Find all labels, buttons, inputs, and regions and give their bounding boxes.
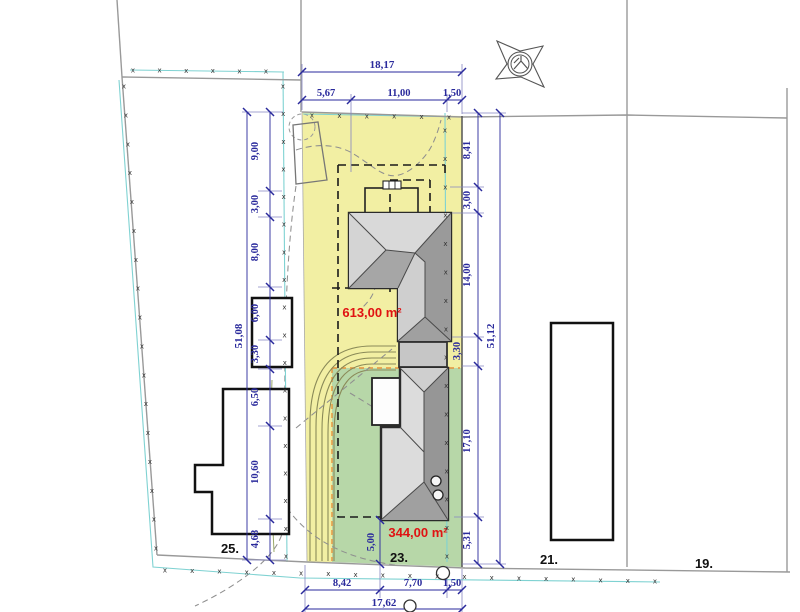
survey-point-circle-2 (404, 600, 416, 612)
fence-x-mark: x (282, 193, 286, 201)
fence-x-mark: x (653, 578, 657, 586)
existing-building-plot21 (551, 323, 613, 540)
fence-x-mark: x (445, 524, 449, 532)
dim-right-3: 14,00 (462, 263, 473, 287)
fence-x-mark: x (443, 183, 447, 191)
dim-bottom-1: 8,42 (333, 578, 351, 589)
fence-x-mark: x (140, 342, 144, 350)
fence-x-mark: x (190, 567, 194, 575)
fence-x-mark: x (148, 458, 152, 466)
fence-x-mark: x (444, 382, 448, 390)
fence-x-mark: x (544, 575, 548, 583)
fence-x-mark: x (443, 127, 447, 135)
fence-x-mark: x (283, 331, 287, 339)
fence-x-mark: x (284, 497, 288, 505)
dim-bottom-2: 7,70 (404, 578, 422, 589)
dim-top-1: 5,67 (317, 88, 335, 99)
dim-left-8: 4,68 (250, 530, 261, 548)
fence-x-mark: x (281, 165, 285, 173)
plot-label-21: 21. (540, 552, 558, 567)
fence-x-mark: x (264, 68, 268, 76)
dim-right-2: 3,00 (462, 191, 473, 209)
fence-x-mark: x (444, 354, 448, 362)
fence-x-mark: x (131, 67, 135, 75)
fence-x-mark: x (444, 297, 448, 305)
fence-x-mark: x (136, 285, 140, 293)
fence-x-mark: x (443, 155, 447, 163)
site-plan-canvas: 18,17 5,67 11,00 1,50 51,08 9,00 3,00 8,… (0, 0, 800, 612)
fence-x-mark: x (122, 83, 126, 91)
dim-right-6: 5,31 (462, 531, 473, 549)
fence-x-mark: x (134, 256, 138, 264)
fence-x-mark: x (392, 113, 396, 121)
fence-x-mark: x (444, 269, 448, 277)
fence-x-mark: x (365, 112, 369, 120)
fence-x-mark: x (163, 567, 167, 575)
fence-x-mark: x (435, 573, 439, 581)
fence-x-mark: x (126, 140, 130, 148)
plot-label-23: 23. (390, 550, 408, 565)
fence-x-mark: x (310, 112, 314, 120)
fence-x-mark: x (354, 571, 358, 579)
fence-x-mark: x (282, 304, 286, 312)
roof-opening-circle-2 (433, 490, 443, 500)
fence-x-mark: x (283, 442, 287, 450)
fence-x-mark: x (245, 568, 249, 576)
fence-x-mark: x (337, 112, 341, 120)
fence-x-mark: x (284, 525, 288, 533)
fence-x-mark: x (447, 114, 451, 122)
area-label-lower: 344,00 m² (388, 525, 448, 540)
fence-x-mark: x (420, 113, 424, 121)
dim-left-6: 6,50 (250, 388, 261, 406)
dim-bottom-overall: 17,62 (372, 597, 397, 609)
fence-x-mark: x (283, 414, 287, 422)
fence-x-mark: x (381, 571, 385, 579)
fence-x-mark: x (144, 400, 148, 408)
fence-x-mark: x (445, 496, 449, 504)
fence-x-mark: x (282, 248, 286, 256)
fence-x-mark: x (124, 111, 128, 119)
dim-right-5: 17,10 (462, 429, 473, 453)
fence-x-mark: x (211, 67, 215, 75)
terrace (372, 378, 400, 425)
area-label-upper: 613,00 m² (342, 305, 402, 320)
existing-building-plot25 (195, 389, 289, 534)
compass-rose-icon (496, 41, 544, 87)
plot-label-25: 25. (221, 541, 239, 556)
fence-x-mark: x (445, 467, 449, 475)
dim-top-3: 1,50 (443, 88, 461, 99)
dim-right-overall: 51,12 (485, 323, 497, 348)
fence-x-mark: x (444, 411, 448, 419)
roof-opening-circle-1 (431, 476, 441, 486)
fence-x-mark: x (462, 573, 466, 581)
fence-x-mark: x (408, 572, 412, 580)
fence-x-mark: x (272, 569, 276, 577)
dim-left-3: 8,00 (250, 243, 261, 261)
dim-left-4: 6,00 (250, 304, 261, 322)
fence-x-mark: x (142, 371, 146, 379)
fence-x-mark: x (281, 110, 285, 118)
fence-x-mark: x (283, 470, 287, 478)
fence-x-mark: x (237, 67, 241, 75)
fence-x-mark: x (184, 67, 188, 75)
fence-x-mark: x (217, 568, 221, 576)
dim-top-overall: 18,17 (370, 59, 395, 71)
dim-right-4: 3,30 (452, 342, 463, 360)
dim-left-overall: 51,08 (233, 323, 245, 348)
fence-x-mark: x (138, 314, 142, 322)
fence-x-mark: x (283, 359, 287, 367)
dim-left-5: 3,30 (250, 345, 261, 363)
fence-x-mark: x (444, 325, 448, 333)
chimney (383, 181, 401, 189)
fence-x-mark: x (283, 387, 287, 395)
fence-x-mark: x (146, 429, 150, 437)
fence-x-mark: x (281, 83, 285, 91)
fence-x-mark: x (517, 574, 521, 582)
dim-left-7: 10,60 (250, 460, 261, 484)
fence-x-mark: x (443, 240, 447, 248)
fence-x-mark: x (299, 570, 303, 578)
fence-x-mark: x (599, 576, 603, 584)
fence-x-mark: x (444, 439, 448, 447)
fence-x-mark: x (282, 276, 286, 284)
dim-south-gap: 5,00 (366, 533, 377, 551)
fence-x-mark: x (282, 221, 286, 229)
fence-x-mark: x (281, 138, 285, 146)
dim-right-1: 8,41 (462, 141, 473, 159)
dim-top-2: 11,00 (387, 88, 410, 99)
fence-x-mark: x (443, 212, 447, 220)
fence-x-mark: x (490, 574, 494, 582)
dim-left-2: 3,00 (250, 195, 261, 213)
fence-x-mark: x (158, 67, 162, 75)
fence-x-mark: x (128, 169, 132, 177)
plot-label-19: 19. (695, 556, 713, 571)
fence-x-mark: x (130, 198, 134, 206)
fence-x-mark: x (152, 516, 156, 524)
fence-x-mark: x (571, 576, 575, 584)
fence-x-mark: x (150, 487, 154, 495)
fence-x-mark: x (626, 577, 630, 585)
fence-x-mark: x (154, 545, 158, 553)
fence-x-mark: x (326, 570, 330, 578)
dim-left-1: 9,00 (250, 142, 261, 160)
fence-x-mark: x (284, 553, 288, 561)
fence-x-mark: x (132, 227, 136, 235)
fence-x-mark: x (445, 553, 449, 561)
connector-roof (399, 342, 447, 367)
